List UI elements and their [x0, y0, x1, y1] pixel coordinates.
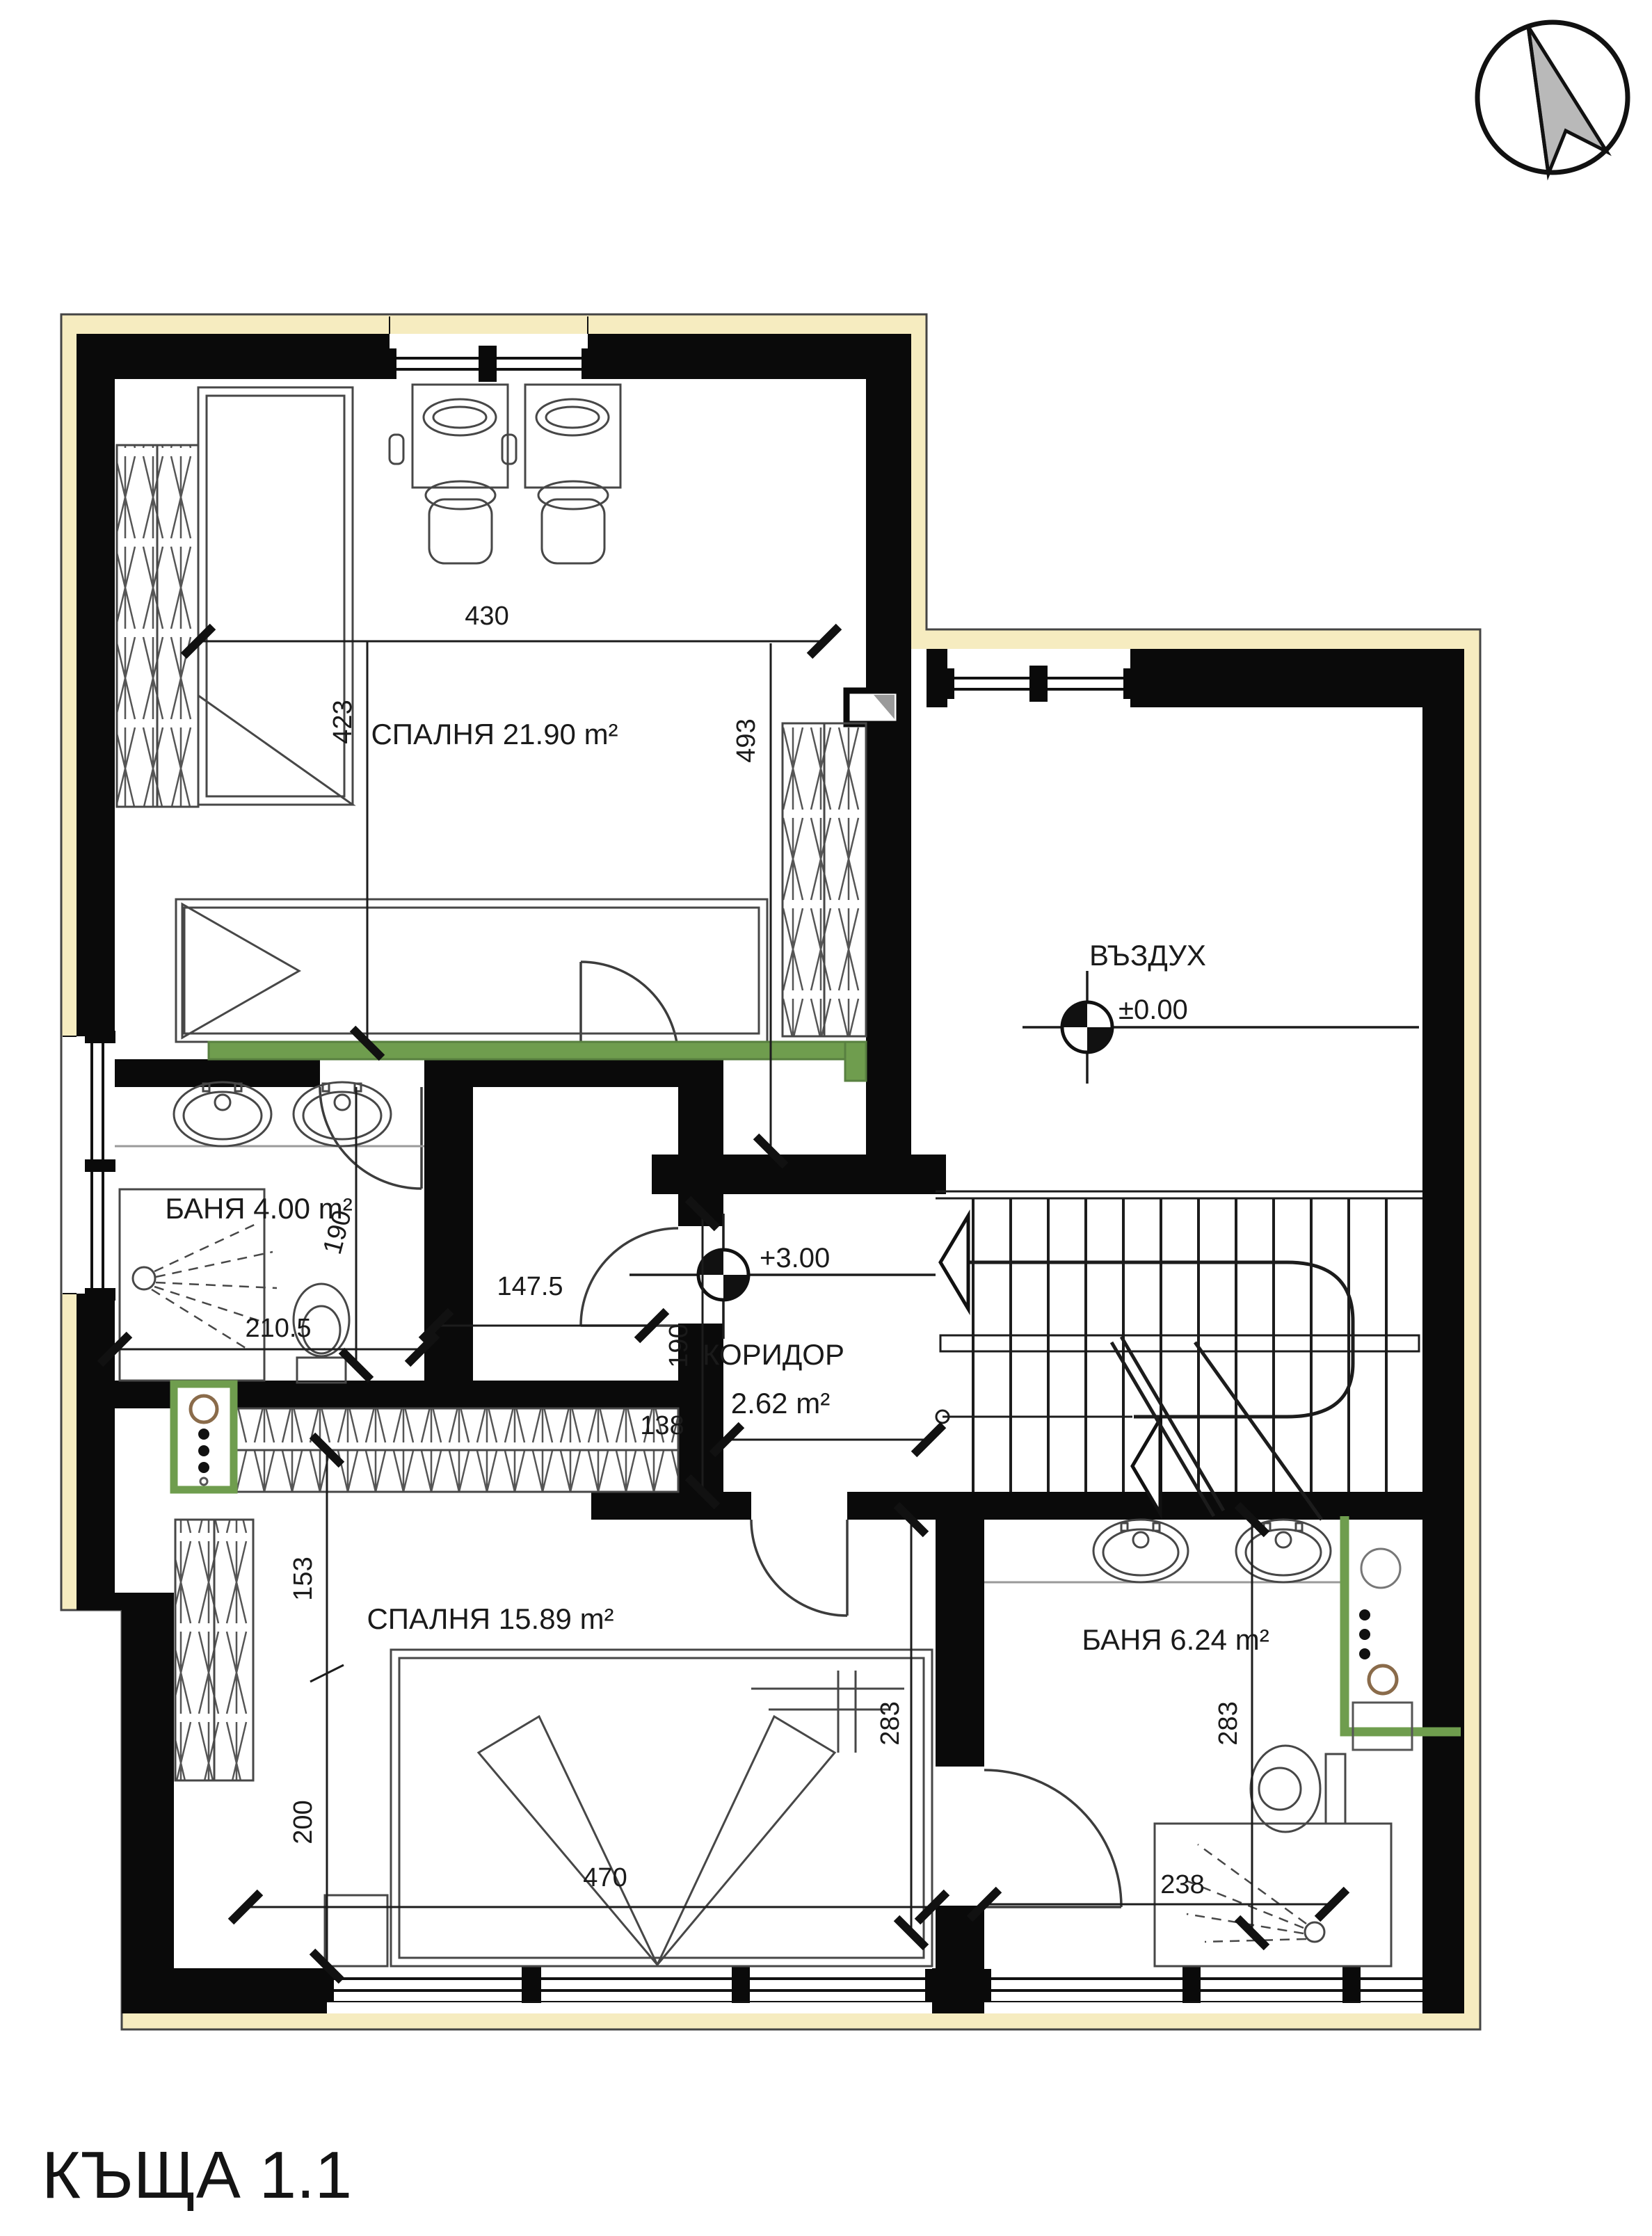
- dim-bath2-width: 238: [1160, 1870, 1204, 1899]
- dim-bedroom2-width: 470: [583, 1863, 627, 1892]
- sink: [174, 1082, 271, 1146]
- level-marker-void: [1023, 971, 1419, 1084]
- dim-bath2-height: 283: [1214, 1701, 1243, 1745]
- furniture-bedroom2: [175, 1408, 932, 1966]
- dim-bedroom1-height-left: 423: [328, 700, 358, 743]
- dim-bedroom1-width: 430: [465, 602, 508, 631]
- sink: [1093, 1520, 1188, 1582]
- bed-double: [176, 899, 767, 1042]
- sink: [294, 1082, 391, 1146]
- floor-plan-drawing: СПАЛНЯ 21.90 m² ВЪЗДУХ ±0.00 БАНЯ 4.00 m…: [0, 0, 1652, 2236]
- door-bedroom2: [751, 1520, 847, 1616]
- room-label-bath1: БАНЯ 4.00 m²: [165, 1192, 352, 1225]
- stair-direction-arrow: [940, 1216, 968, 1309]
- wardrobe-top: [223, 1408, 678, 1492]
- dim-corridor-height: 190: [664, 1324, 693, 1367]
- dim-bedroom2-upper: 153: [289, 1557, 318, 1600]
- room-label-corridor: КОРИДОР: [703, 1338, 844, 1371]
- desk-1: [390, 385, 508, 563]
- floor-plan-sheet: СПАЛНЯ 21.90 m² ВЪЗДУХ ±0.00 БАНЯ 4.00 m…: [0, 0, 1652, 2236]
- room-label-bath2: БАНЯ 6.24 m²: [1082, 1623, 1269, 1656]
- dim-hall-width: 147.5: [497, 1272, 563, 1301]
- bed-main: [391, 1650, 932, 1966]
- dim-bedroom2-height: 283: [876, 1701, 905, 1745]
- furniture-bedroom1: [117, 385, 866, 1042]
- door-bath2: [984, 1770, 1121, 1907]
- door-corridor: [581, 1228, 678, 1326]
- sheet-title: КЪЩА 1.1: [42, 2138, 352, 2212]
- desk-2: [502, 385, 620, 563]
- level-label-void: ±0.00: [1118, 995, 1188, 1025]
- room-area-corridor: 2.62 m²: [731, 1387, 830, 1419]
- dim-corridor-width: 138: [640, 1411, 684, 1440]
- wardrobe-side: [175, 1520, 253, 1780]
- room-label-bedroom1: СПАЛНЯ 21.90 m²: [371, 718, 618, 750]
- wardrobe-left: [117, 445, 198, 807]
- dim-bedroom1-height-right: 493: [732, 718, 761, 762]
- room-label-void: ВЪЗДУХ: [1089, 939, 1206, 972]
- shaft: [847, 691, 899, 724]
- walls: [77, 334, 1464, 2013]
- room-label-bedroom2: СПАЛНЯ 15.89 m²: [367, 1602, 614, 1635]
- sink: [1236, 1520, 1331, 1582]
- level-marker-corridor: [629, 1214, 936, 1339]
- dim-bedroom2-lower: 200: [289, 1800, 318, 1844]
- level-label-corridor: +3.00: [760, 1243, 830, 1273]
- north-arrow-icon: [1477, 22, 1628, 174]
- utility-unit-left: [174, 1384, 234, 1490]
- dim-bath1-width: 210.5: [245, 1314, 311, 1343]
- toilet: [1251, 1746, 1345, 1832]
- nightstand: [325, 1895, 387, 1966]
- staircase: [936, 1191, 1422, 1520]
- wardrobe-right: [783, 723, 866, 1036]
